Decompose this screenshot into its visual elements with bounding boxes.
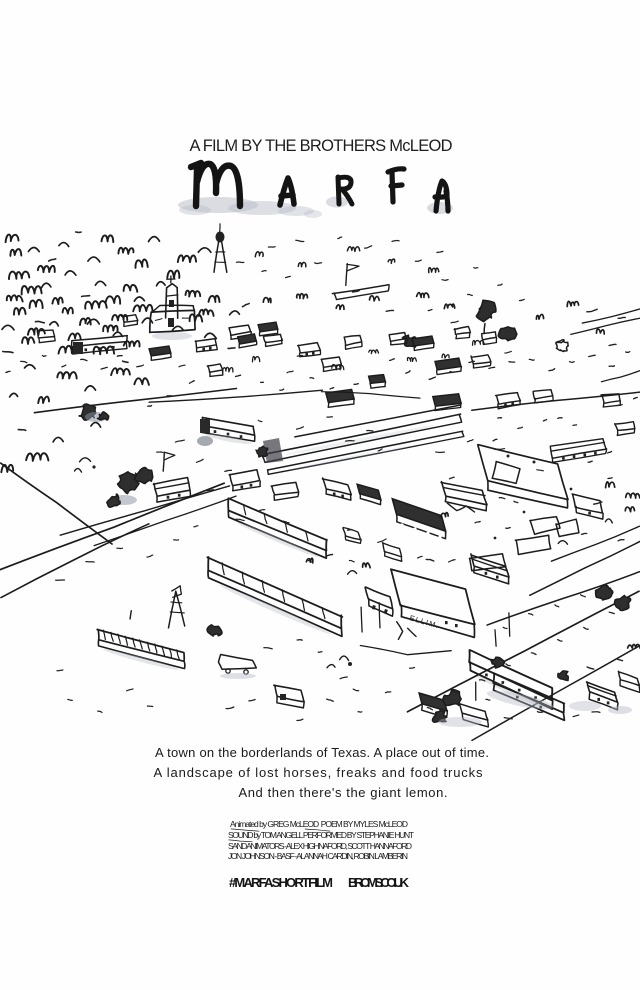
svg-text:SAND ANIMATORS - ALEX HIGHNAFO: SAND ANIMATORS - ALEX HIGHNAFORD, SCOTT …: [228, 841, 412, 851]
svg-text:Animated by GREG McLEOD POEM: Animated by GREG McLEOD POEM BY MYLES Mc…: [230, 819, 408, 829]
svg-text:JON JOHNSON - BASF - ALANNAH C: JON JOHNSON - BASF - ALANNAH CARDIN, ROB…: [228, 851, 408, 861]
svg-text:And then there's the giant lem: And then there's the giant lemon.: [239, 785, 448, 800]
svg-text:A town on the borderlands of T: A town on the borderlands of Texas. A pl…: [155, 745, 489, 760]
svg-text:SOUND by TOM ANGELL PERFORMED: SOUND by TOM ANGELL PERFORMED BY STEPHAN…: [228, 830, 414, 840]
svg-text:BROMS.CO.UK: BROMS.CO.UK: [348, 875, 411, 890]
svg-text:#MARFASHORTFILM: #MARFASHORTFILM: [229, 875, 335, 890]
svg-text:A landscape of lost horses, fr: A landscape of lost horses, freaks and f…: [154, 765, 484, 780]
svg-text:A FILM BY THE BROTHERS McLEOD: A FILM BY THE BROTHERS McLEOD: [190, 137, 455, 155]
